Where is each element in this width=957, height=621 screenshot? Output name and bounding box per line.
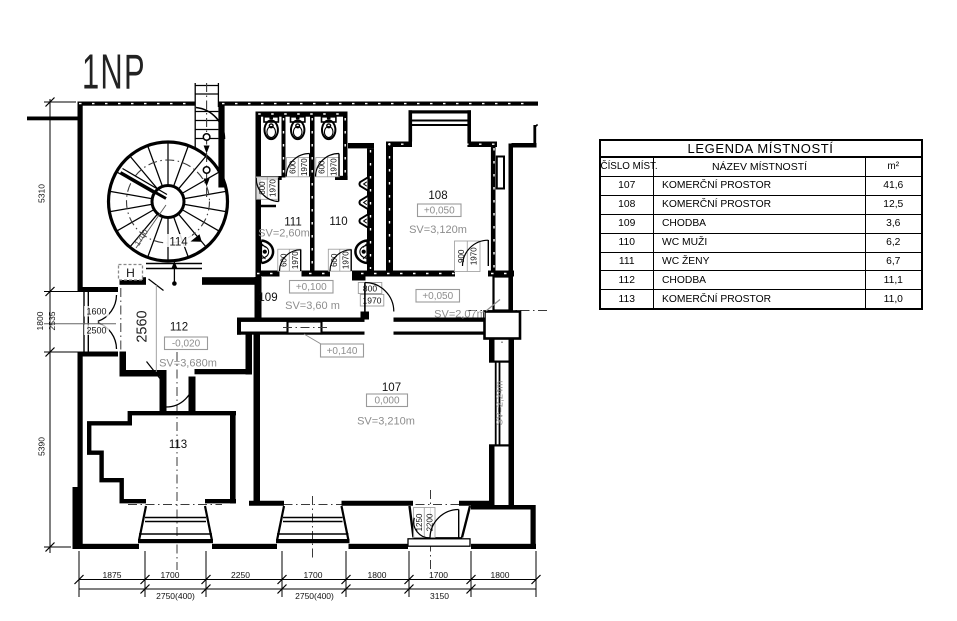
svg-text:+0,050: +0,050	[424, 206, 455, 217]
svg-text:SV=2,07m: SV=2,07m	[434, 309, 486, 321]
svg-text:1800: 1800	[35, 311, 45, 330]
svg-text:H: H	[126, 266, 135, 280]
svg-text:1970: 1970	[300, 158, 309, 176]
svg-text:5390: 5390	[37, 437, 47, 456]
svg-text:SV=3,120m: SV=3,120m	[409, 224, 467, 236]
svg-text:SV=3,210m: SV=3,210m	[357, 416, 415, 428]
svg-text:1970: 1970	[470, 247, 479, 265]
svg-text:1970: 1970	[269, 179, 278, 197]
svg-text:2535: 2535	[47, 311, 57, 330]
svg-text:1700: 1700	[429, 570, 448, 580]
svg-text:2750(400): 2750(400)	[295, 591, 334, 601]
svg-text:SV=3,60 m: SV=3,60 m	[285, 300, 340, 312]
svg-text:600: 600	[318, 160, 327, 174]
svg-text:2200: 2200	[426, 513, 435, 531]
svg-text:1700: 1700	[304, 570, 323, 580]
svg-text:109: 109	[258, 292, 277, 304]
svg-text:2250: 2250	[231, 570, 250, 580]
svg-text:1800: 1800	[491, 570, 510, 580]
svg-text:-0,020: -0,020	[172, 339, 201, 350]
svg-text:110: 110	[329, 216, 347, 228]
svg-text:114: 114	[169, 237, 188, 249]
svg-text:5310: 5310	[37, 184, 47, 203]
svg-text:1970: 1970	[342, 251, 351, 269]
svg-text:600: 600	[288, 160, 297, 174]
svg-text:113: 113	[169, 439, 187, 451]
svg-text:108: 108	[428, 190, 447, 202]
svg-text:1250: 1250	[415, 513, 424, 531]
svg-text:SV=2,60m: SV=2,60m	[258, 228, 310, 240]
svg-text:+0,050: +0,050	[422, 291, 453, 302]
svg-text:1700: 1700	[133, 227, 151, 247]
svg-text:2750(400): 2750(400)	[156, 591, 195, 601]
svg-text:1800: 1800	[368, 570, 387, 580]
svg-text:600: 600	[258, 181, 267, 195]
svg-text:2500: 2500	[86, 326, 106, 336]
svg-text:2560: 2560	[135, 310, 151, 342]
svg-text:107: 107	[382, 382, 401, 394]
svg-text:1875: 1875	[103, 570, 122, 580]
svg-text:0,000: 0,000	[374, 396, 399, 407]
svg-text:112: 112	[170, 322, 188, 334]
svg-text:SV=3,680m: SV=3,680m	[159, 358, 217, 370]
svg-text:1NP: 1NP	[82, 44, 146, 99]
svg-text:1700: 1700	[161, 570, 180, 580]
svg-text:SV=2,24m: SV=2,24m	[495, 381, 506, 426]
svg-text:+0,100: +0,100	[296, 282, 327, 293]
svg-text:1600: 1600	[86, 307, 106, 317]
svg-text:3150: 3150	[430, 591, 449, 601]
svg-text:1970: 1970	[329, 158, 338, 176]
svg-text:+0,140: +0,140	[327, 346, 358, 357]
svg-text:1970: 1970	[291, 251, 300, 269]
